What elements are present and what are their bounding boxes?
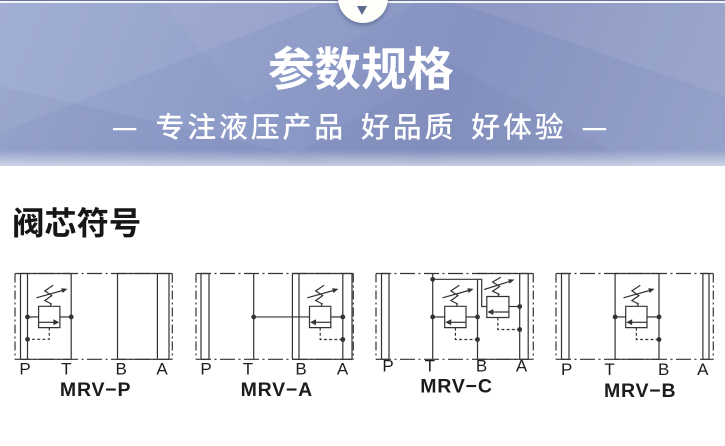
svg-text:A: A	[156, 360, 168, 379]
svg-text:A: A	[697, 360, 709, 379]
svg-text:B: B	[295, 360, 306, 379]
svg-text:B: B	[116, 360, 127, 379]
svg-text:T: T	[243, 360, 253, 379]
svg-text:B: B	[476, 357, 487, 376]
svg-text:MRV−C: MRV−C	[420, 376, 492, 398]
svg-text:P: P	[200, 360, 211, 379]
svg-text:T: T	[604, 360, 614, 379]
svg-text:P: P	[561, 360, 572, 379]
svg-text:MRV−B: MRV−B	[604, 380, 676, 402]
svg-text:P: P	[19, 360, 30, 379]
svg-text:P: P	[382, 357, 393, 376]
svg-text:B: B	[658, 360, 669, 379]
svg-text:MRV−A: MRV−A	[241, 379, 313, 401]
svg-text:T: T	[61, 360, 71, 379]
svg-text:MRV−P: MRV−P	[60, 379, 131, 401]
svg-text:A: A	[516, 357, 528, 376]
svg-text:T: T	[425, 357, 435, 376]
svg-text:A: A	[337, 360, 349, 379]
